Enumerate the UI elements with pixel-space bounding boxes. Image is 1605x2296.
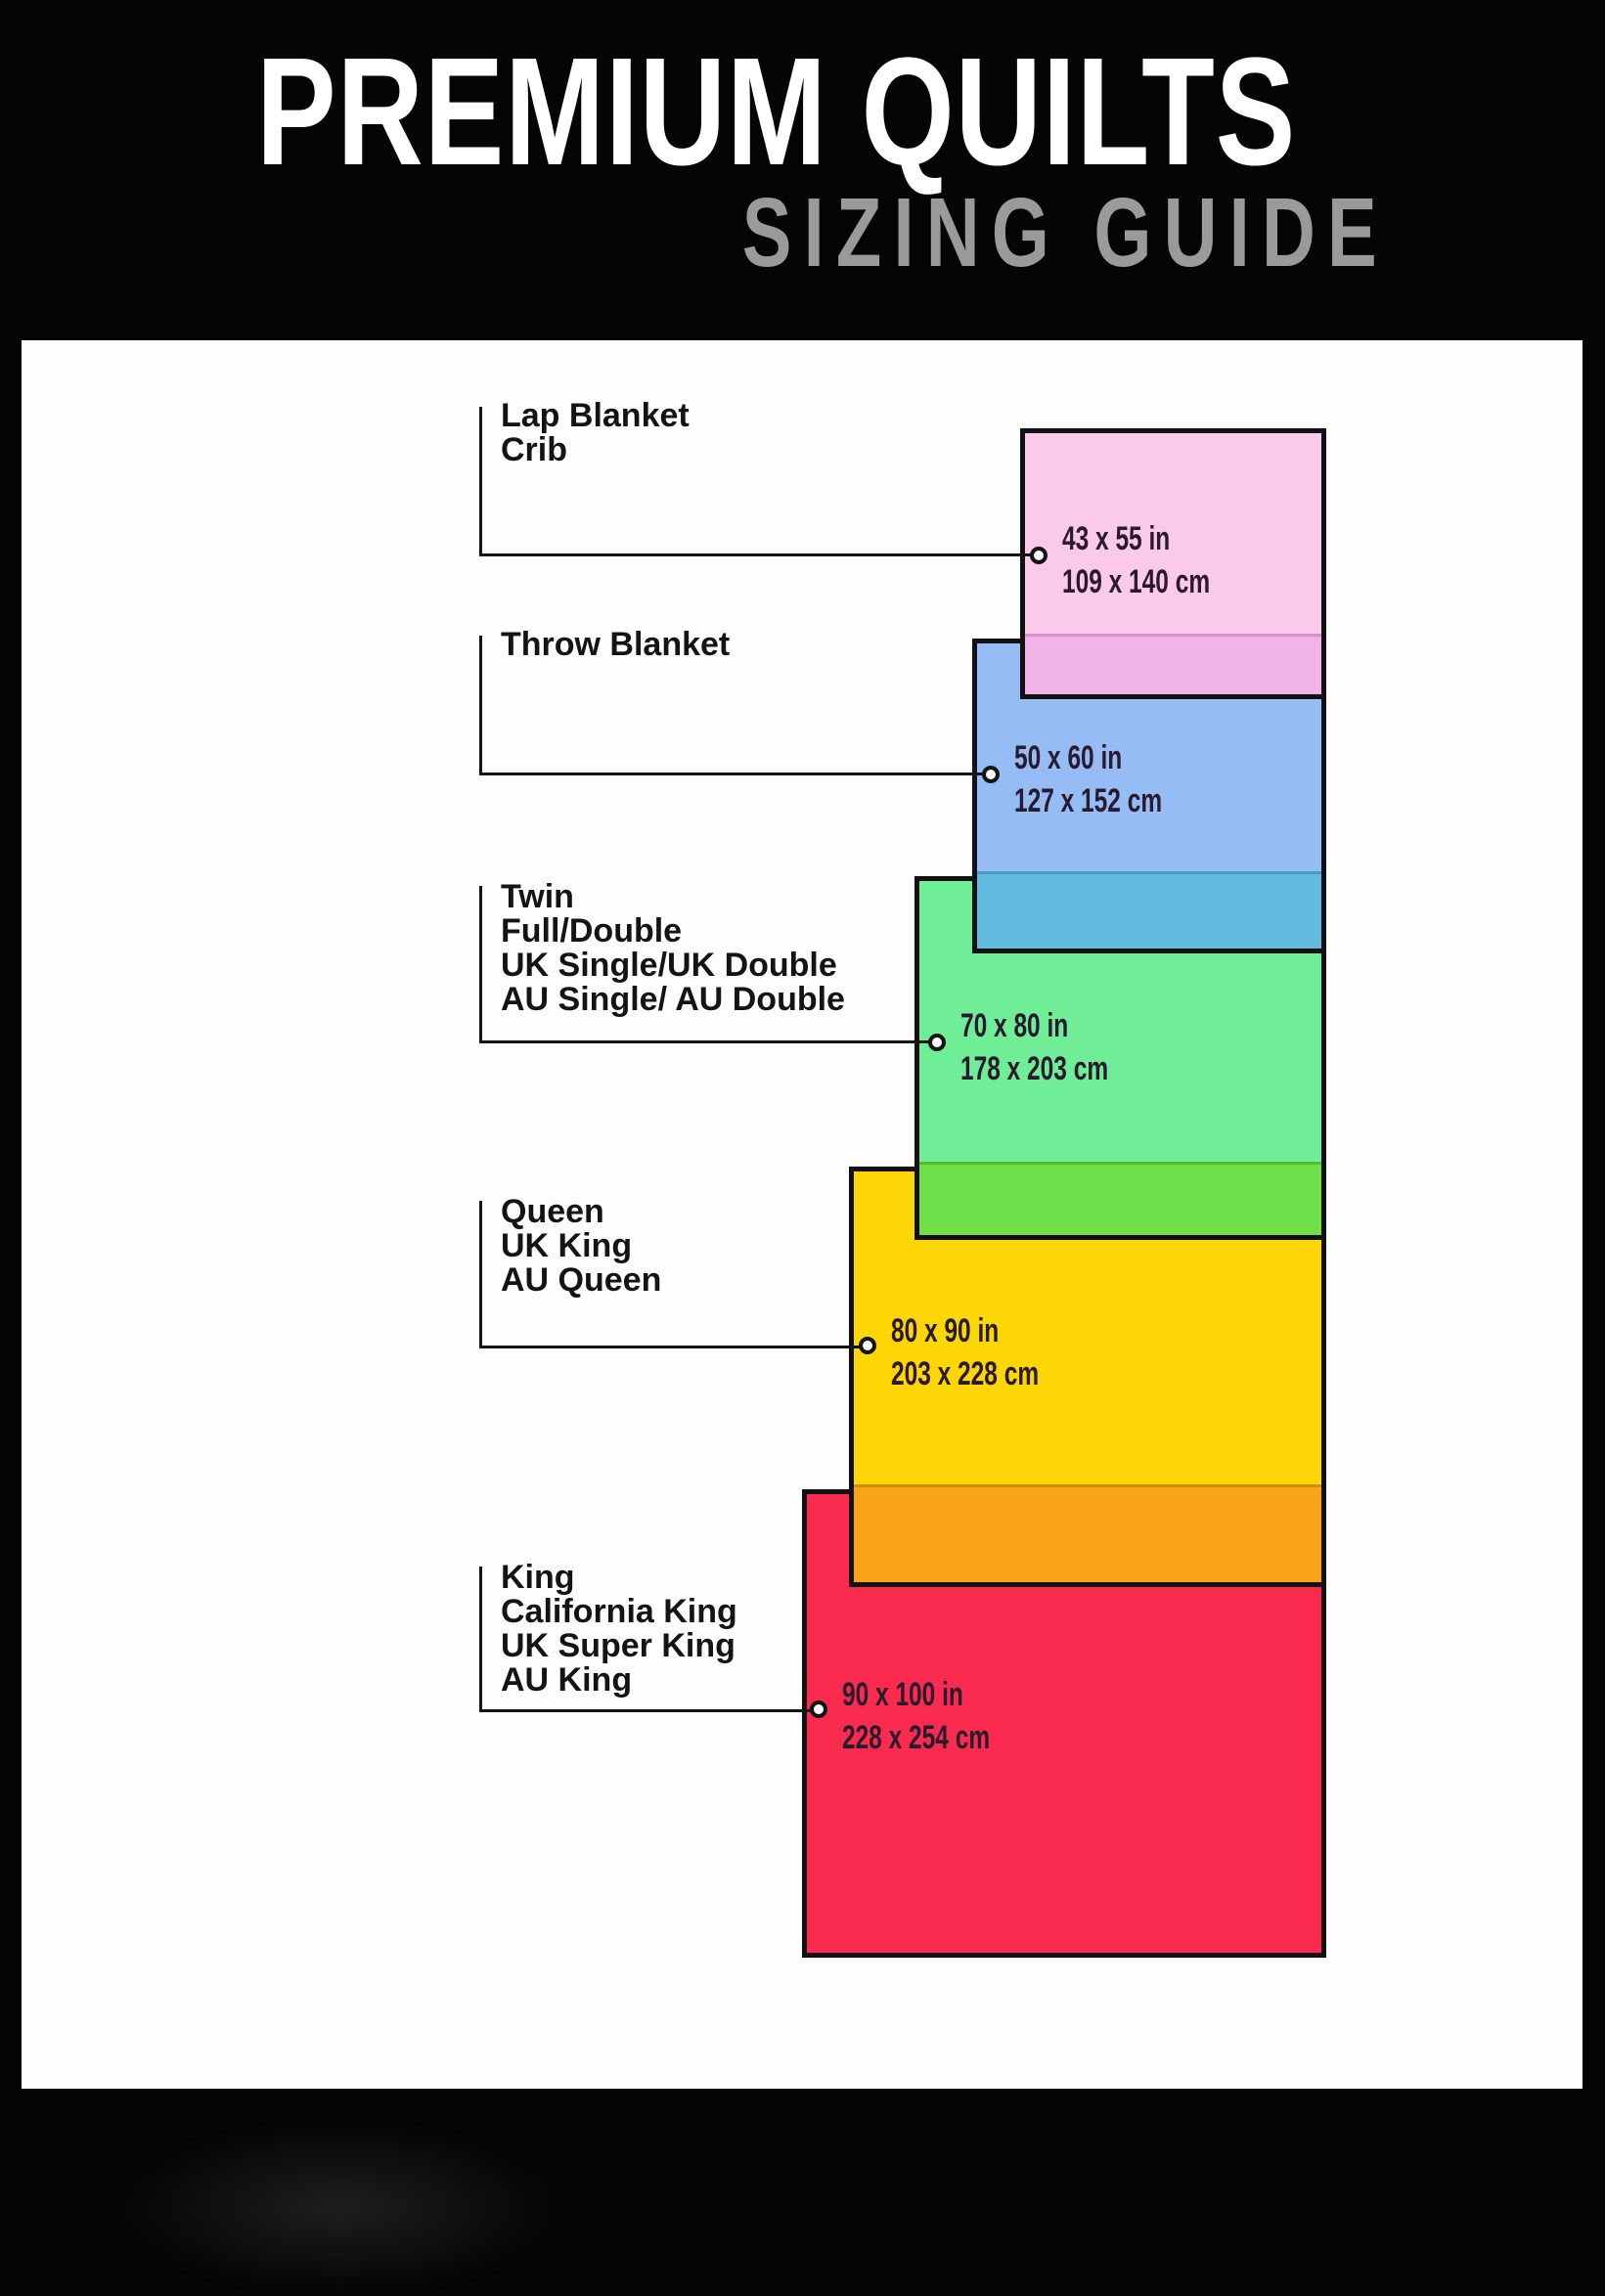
- leader-vline-king: [479, 1567, 482, 1712]
- label-line: Crib: [501, 433, 690, 467]
- label-line: Lap Blanket: [501, 399, 690, 433]
- throw-over-twin-overlap: [977, 871, 1321, 949]
- dimension-inches: 90 x 100 in: [842, 1673, 990, 1716]
- label-line: Queen: [501, 1195, 661, 1229]
- dimension-cm: 178 x 203 cm: [960, 1047, 1108, 1090]
- leader-vline-lap: [479, 407, 482, 556]
- dimension-inches: 80 x 90 in: [891, 1309, 1039, 1352]
- leader-hline-queen: [479, 1346, 860, 1348]
- quilt-sizing-guide-page: { "header": { "title": "PREMIUM QUILTS",…: [0, 0, 1605, 2112]
- leader-hline-lap: [479, 553, 1031, 556]
- connector-circle-lap: [1030, 547, 1048, 564]
- label-twin-full-double: Twin Full/Double UK Single/UK Double AU …: [501, 880, 845, 1017]
- leader-vline-twin: [479, 886, 482, 1043]
- dimension-inches: 50 x 60 in: [1014, 736, 1162, 779]
- connector-circle-twin: [928, 1034, 946, 1051]
- label-line: California King: [501, 1595, 737, 1629]
- leader-vline-queen: [479, 1201, 482, 1348]
- dimensions-king: 90 x 100 in 228 x 254 cm: [842, 1673, 990, 1759]
- label-king-california-king: King California King UK Super King AU Ki…: [501, 1561, 737, 1698]
- label-line: King: [501, 1561, 737, 1595]
- dimension-inches: 70 x 80 in: [960, 1004, 1108, 1047]
- page-subtitle: SIZING GUIDE: [742, 184, 1389, 282]
- lap-over-throw-overlap: [1025, 634, 1321, 694]
- label-line: AU Queen: [501, 1263, 661, 1298]
- dimension-cm: 109 x 140 cm: [1062, 560, 1210, 603]
- dimensions-twin: 70 x 80 in 178 x 203 cm: [960, 1004, 1108, 1090]
- dimensions-queen: 80 x 90 in 203 x 228 cm: [891, 1309, 1039, 1395]
- label-lap-blanket-crib: Lap Blanket Crib: [501, 399, 690, 467]
- dimensions-throw: 50 x 60 in 127 x 152 cm: [1014, 736, 1162, 822]
- twin-over-queen-overlap: [919, 1162, 1321, 1235]
- leader-hline-king: [479, 1709, 811, 1712]
- label-line: AU Single/ AU Double: [501, 983, 845, 1017]
- label-line: Twin: [501, 880, 845, 914]
- dimension-cm: 127 x 152 cm: [1014, 779, 1162, 822]
- page-title: PREMIUM QUILTS: [256, 35, 1296, 189]
- label-line: Full/Double: [501, 914, 845, 949]
- leader-vline-throw: [479, 636, 482, 775]
- label-queen-uk-king-au-queen: Queen UK King AU Queen: [501, 1195, 661, 1298]
- label-line: UK King: [501, 1229, 661, 1263]
- connector-circle-queen: [859, 1337, 876, 1354]
- label-line: Throw Blanket: [501, 628, 730, 662]
- leader-hline-twin: [479, 1040, 929, 1043]
- label-line: AU King: [501, 1663, 737, 1698]
- paper-shadow-artifact: [110, 2120, 569, 2296]
- dimension-inches: 43 x 55 in: [1062, 517, 1210, 560]
- connector-circle-throw: [982, 766, 1000, 783]
- label-line: UK Super King: [501, 1629, 737, 1663]
- dimension-cm: 203 x 228 cm: [891, 1352, 1039, 1395]
- dimension-cm: 228 x 254 cm: [842, 1716, 990, 1759]
- leader-hline-throw: [479, 773, 983, 775]
- queen-over-king-overlap: [854, 1484, 1321, 1582]
- label-throw-blanket: Throw Blanket: [501, 628, 730, 662]
- connector-circle-king: [810, 1700, 827, 1718]
- dimensions-lap-crib: 43 x 55 in 109 x 140 cm: [1062, 517, 1210, 603]
- label-line: UK Single/UK Double: [501, 949, 845, 983]
